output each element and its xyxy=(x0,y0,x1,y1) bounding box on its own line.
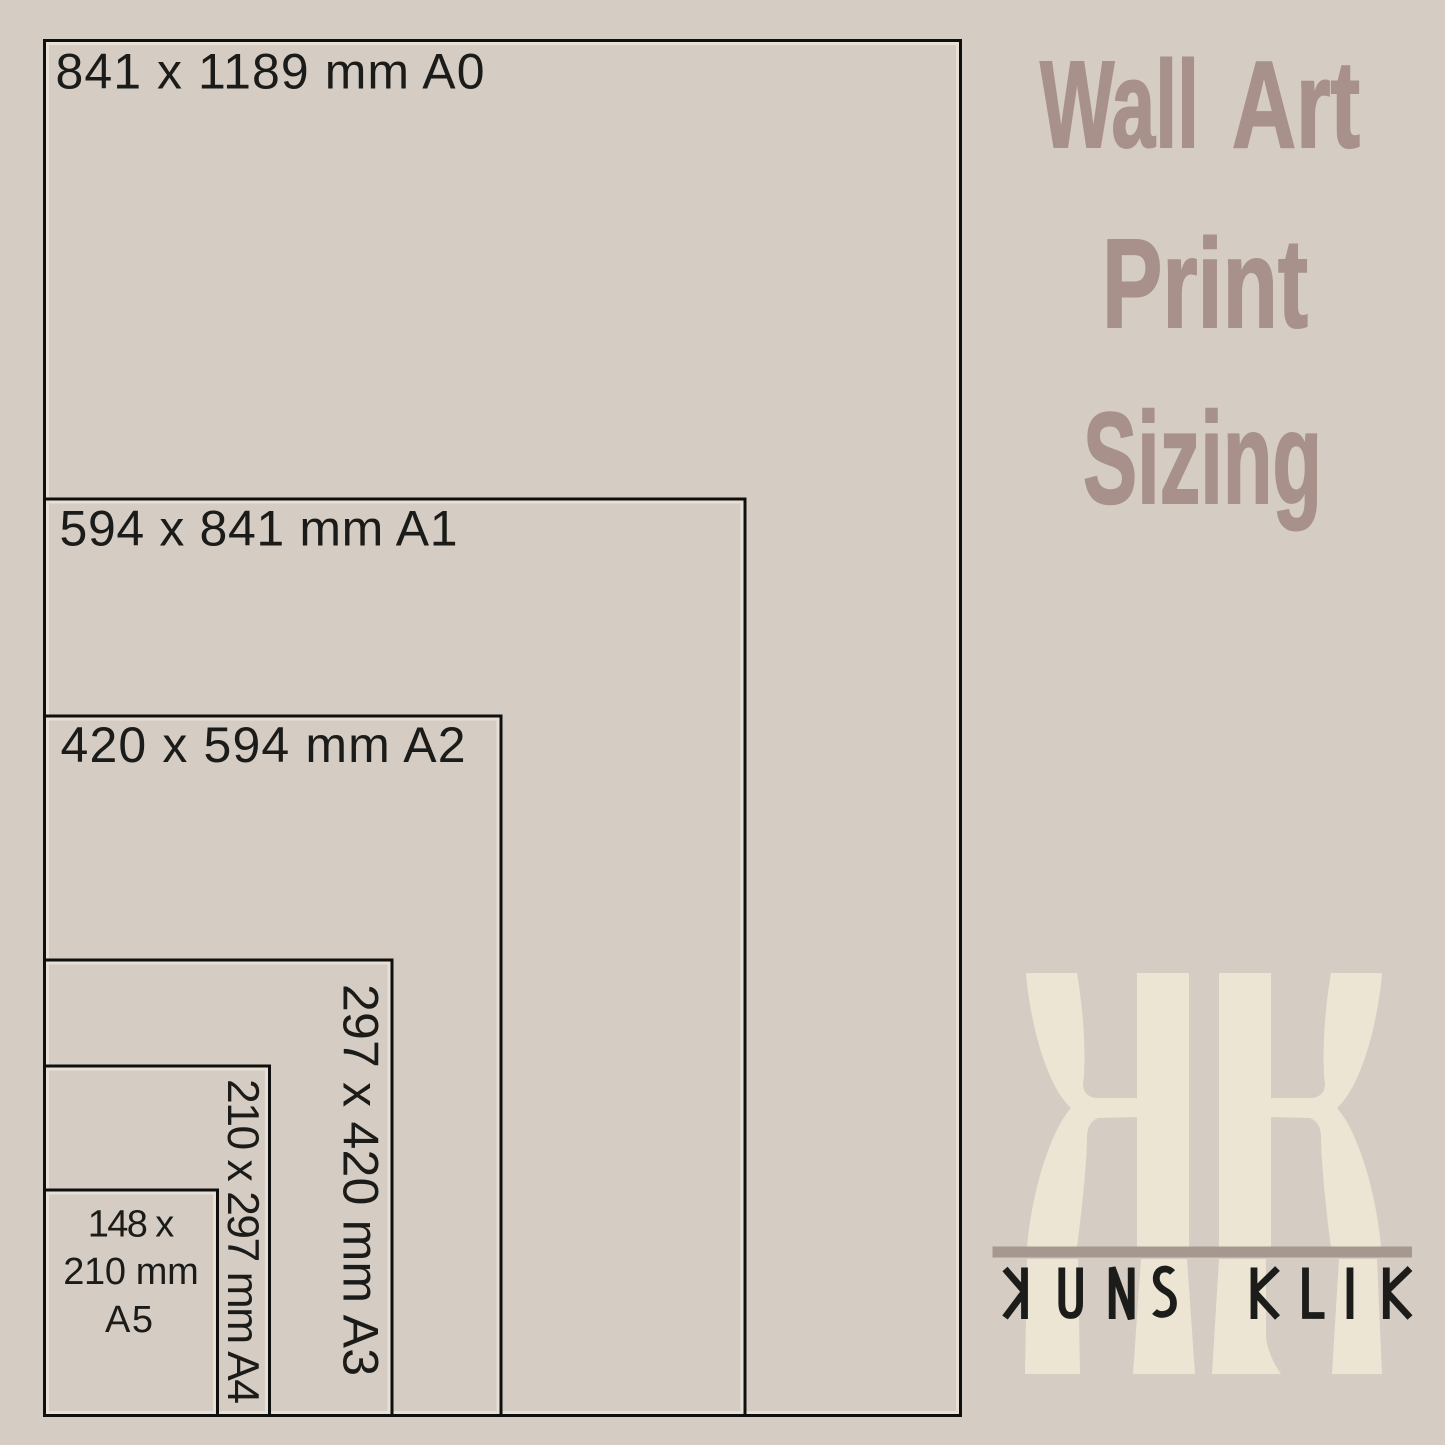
svg-text:Print: Print xyxy=(1102,213,1308,354)
svg-text:420 x 594 mm A2: 420 x 594 mm A2 xyxy=(61,717,466,773)
svg-text:297 x 420 mm A3: 297 x 420 mm A3 xyxy=(333,984,389,1376)
svg-text:Art: Art xyxy=(1232,37,1360,174)
svg-text:210 mm: 210 mm xyxy=(63,1251,199,1293)
svg-text:Wall: Wall xyxy=(1040,37,1199,174)
svg-text:210 x 297 mm A4: 210 x 297 mm A4 xyxy=(218,1079,267,1404)
svg-text:841 x 1189 mm A0: 841 x 1189 mm A0 xyxy=(56,44,485,100)
svg-text:148 x: 148 x xyxy=(88,1204,175,1246)
svg-text:Sizing: Sizing xyxy=(1083,385,1322,531)
svg-text:594 x 841 mm A1: 594 x 841 mm A1 xyxy=(60,500,458,556)
svg-text:A5: A5 xyxy=(105,1299,153,1341)
